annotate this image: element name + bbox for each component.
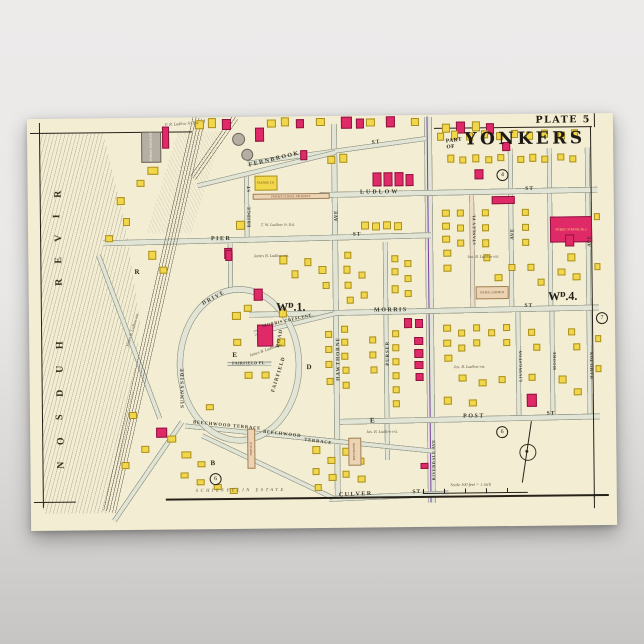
building bbox=[497, 154, 504, 161]
building bbox=[296, 119, 304, 128]
building-label: PRIVATE SCHOOL PROPERTY bbox=[271, 194, 310, 198]
ward-label: Wᴰ.4. bbox=[548, 289, 577, 304]
building bbox=[568, 328, 575, 335]
building bbox=[444, 397, 452, 405]
building bbox=[508, 264, 515, 271]
building bbox=[257, 325, 273, 347]
building-label: PLATING CO bbox=[257, 180, 274, 184]
building bbox=[318, 266, 326, 274]
map-border-line bbox=[594, 494, 595, 508]
building bbox=[488, 329, 495, 336]
building bbox=[232, 133, 245, 146]
building bbox=[595, 365, 601, 372]
building bbox=[404, 318, 412, 328]
building bbox=[236, 221, 245, 230]
building bbox=[123, 218, 130, 226]
building bbox=[181, 451, 191, 458]
plate-number-label: PLATE 5 bbox=[495, 114, 591, 126]
title-yonkers: YONKERS bbox=[464, 128, 585, 149]
building bbox=[459, 374, 467, 381]
building bbox=[414, 337, 423, 345]
estate-annotation: Jas. B. Ludlow est. bbox=[454, 364, 486, 369]
block-letter-D: D bbox=[306, 363, 311, 371]
building bbox=[369, 351, 376, 358]
building bbox=[244, 305, 252, 312]
building bbox=[341, 117, 352, 129]
building bbox=[262, 372, 270, 379]
building bbox=[329, 474, 337, 481]
estate-annotation: Scale 100 feet = 1 inch bbox=[450, 482, 491, 487]
building-label: FAIRFIELD bbox=[250, 442, 253, 456]
title-part-of: PARTOF bbox=[446, 137, 464, 151]
river-letter: R bbox=[53, 191, 64, 198]
building bbox=[313, 468, 320, 475]
street-label-bridge: BRIDGE bbox=[246, 206, 251, 227]
building bbox=[162, 127, 169, 149]
building bbox=[457, 210, 464, 217]
estate-annotation: Jas. B. Ludlow est. bbox=[467, 254, 499, 259]
building bbox=[392, 344, 399, 351]
building bbox=[405, 275, 412, 282]
building bbox=[442, 223, 450, 230]
building-label: STORAGE WAREHOUSE bbox=[150, 132, 153, 161]
street-label-ave: AVE bbox=[588, 235, 593, 246]
building bbox=[415, 319, 423, 328]
building bbox=[482, 224, 489, 231]
building bbox=[141, 446, 149, 453]
building bbox=[372, 172, 381, 186]
building bbox=[392, 285, 399, 293]
building bbox=[323, 282, 330, 289]
building bbox=[391, 268, 398, 275]
map-border-line bbox=[594, 494, 609, 496]
building-label: PUBLIC SCHOOL No.2 bbox=[555, 227, 586, 231]
building bbox=[225, 250, 232, 261]
plate-reference-badge-6: 6 bbox=[210, 473, 222, 485]
building bbox=[442, 210, 450, 217]
building bbox=[241, 149, 253, 161]
building bbox=[443, 250, 451, 257]
building bbox=[503, 324, 510, 331]
yonkers-atlas-map: FERNBROOKSTLUDLOWSTPIERSTMORRISSTPOSTSTC… bbox=[27, 113, 617, 531]
building bbox=[117, 197, 125, 205]
estate-annotation: James B. Ludlow est. bbox=[254, 253, 290, 258]
building bbox=[528, 329, 535, 336]
building bbox=[474, 169, 483, 179]
building bbox=[411, 118, 419, 126]
building bbox=[565, 234, 574, 246]
building bbox=[121, 462, 129, 469]
building bbox=[361, 222, 369, 230]
building bbox=[232, 312, 241, 320]
road-stanley-pl bbox=[469, 193, 475, 311]
building bbox=[206, 404, 214, 410]
street-label-st: ST bbox=[547, 411, 556, 417]
building bbox=[159, 267, 167, 274]
river-letter: V bbox=[53, 235, 64, 242]
street-label-riverdale-ave: RIVERDALE AVE bbox=[431, 439, 436, 480]
building bbox=[557, 268, 565, 275]
building bbox=[345, 282, 352, 289]
building bbox=[341, 326, 348, 333]
building bbox=[594, 263, 600, 270]
building bbox=[479, 379, 487, 386]
building bbox=[325, 346, 332, 353]
building bbox=[327, 457, 335, 464]
estate-annotation: Jas. B. Ludlow est. bbox=[366, 429, 398, 434]
building bbox=[312, 446, 320, 454]
building bbox=[533, 344, 540, 351]
building bbox=[370, 366, 377, 373]
building bbox=[129, 412, 137, 419]
building bbox=[392, 358, 399, 365]
building bbox=[325, 361, 332, 368]
street-label-ave: AVE bbox=[511, 228, 516, 239]
street-label-morris: MORRIS bbox=[374, 307, 408, 313]
building bbox=[291, 270, 298, 278]
building bbox=[316, 118, 325, 126]
building bbox=[414, 349, 423, 358]
street-label-fairfield-pl: FAIRFIELD PL bbox=[232, 360, 265, 365]
building bbox=[315, 484, 322, 491]
map-title: PARTOF YONKERS bbox=[446, 128, 586, 149]
building bbox=[197, 479, 205, 485]
plate-reference-badge-7: 7 bbox=[596, 312, 608, 324]
building bbox=[541, 156, 548, 163]
building bbox=[341, 339, 348, 346]
building bbox=[281, 117, 289, 126]
building bbox=[444, 355, 452, 362]
building bbox=[443, 265, 451, 272]
building bbox=[369, 336, 376, 343]
street-label-pier: PIER bbox=[211, 236, 231, 242]
building bbox=[105, 235, 113, 242]
building bbox=[472, 154, 479, 162]
block-letter-B: B bbox=[210, 459, 215, 467]
building-label: BEECHWOOD bbox=[353, 443, 356, 460]
building bbox=[459, 156, 466, 163]
building bbox=[522, 209, 529, 216]
building bbox=[473, 339, 480, 346]
building bbox=[383, 221, 391, 229]
building bbox=[469, 399, 477, 406]
street-label-st: ST bbox=[371, 139, 380, 146]
building bbox=[522, 224, 529, 231]
building bbox=[222, 119, 231, 130]
building bbox=[522, 239, 529, 246]
building bbox=[147, 167, 158, 175]
building bbox=[386, 116, 395, 127]
building bbox=[343, 382, 350, 389]
river-letter: D bbox=[55, 390, 66, 397]
building bbox=[394, 172, 403, 186]
building bbox=[573, 273, 581, 280]
street-label-st: ST bbox=[524, 303, 533, 309]
building bbox=[527, 394, 537, 407]
building bbox=[327, 156, 335, 164]
building bbox=[255, 128, 264, 142]
building bbox=[267, 119, 276, 127]
building bbox=[339, 154, 347, 163]
building bbox=[394, 222, 402, 230]
street-label-livingston: LIVINGSTON bbox=[518, 350, 523, 382]
building bbox=[361, 292, 368, 299]
building bbox=[392, 330, 399, 337]
block-letter-E: E bbox=[370, 416, 375, 424]
building bbox=[442, 236, 450, 243]
building bbox=[495, 274, 503, 281]
building bbox=[437, 133, 444, 141]
building bbox=[457, 225, 464, 232]
building bbox=[383, 172, 392, 186]
building bbox=[233, 339, 241, 346]
river-letter: H bbox=[55, 341, 66, 349]
building bbox=[325, 331, 332, 338]
street-label-purser: PURSER bbox=[386, 341, 391, 366]
street-label-post: POST bbox=[463, 413, 485, 419]
building bbox=[517, 156, 524, 163]
map-poster: FERNBROOKSTLUDLOWSTPIERSTMORRISSTPOSTSTC… bbox=[27, 113, 617, 531]
building bbox=[594, 213, 600, 220]
building bbox=[304, 258, 311, 266]
river-letter: R bbox=[54, 279, 65, 286]
building bbox=[341, 353, 348, 360]
river-letter: O bbox=[56, 437, 67, 445]
building bbox=[458, 330, 465, 337]
river-letter: S bbox=[54, 414, 65, 420]
building bbox=[557, 153, 564, 160]
building bbox=[327, 378, 334, 385]
building bbox=[482, 239, 489, 247]
building bbox=[137, 180, 145, 187]
street-label-st: ST bbox=[353, 232, 362, 238]
river-letter: N bbox=[56, 462, 67, 469]
building bbox=[499, 376, 506, 383]
building bbox=[414, 361, 423, 369]
building bbox=[574, 388, 582, 395]
building bbox=[342, 367, 349, 374]
street-label-hawthorne: HAWTHORNE bbox=[335, 337, 341, 381]
street-label-ludlow: LUDLOW bbox=[360, 189, 399, 195]
building bbox=[473, 324, 480, 331]
street-label-sunnyside: SUNNYSIDE bbox=[179, 367, 185, 408]
building bbox=[254, 289, 263, 301]
building bbox=[343, 471, 350, 478]
building bbox=[573, 343, 580, 350]
building bbox=[447, 155, 454, 163]
building bbox=[393, 372, 400, 379]
ward-label: Wᴰ.1. bbox=[276, 300, 305, 315]
building bbox=[347, 297, 354, 304]
building bbox=[300, 150, 307, 160]
building bbox=[356, 119, 364, 129]
building bbox=[372, 222, 380, 230]
building bbox=[485, 156, 492, 163]
building bbox=[344, 252, 351, 259]
street-label-moore: MOORE bbox=[552, 351, 557, 370]
block-letter-R: R bbox=[134, 268, 139, 276]
street-label-ave: AVE bbox=[334, 210, 339, 221]
building bbox=[358, 272, 365, 279]
building bbox=[492, 196, 515, 204]
plate-reference-badge-4: 4 bbox=[496, 169, 508, 181]
building bbox=[391, 255, 398, 262]
building bbox=[393, 400, 400, 407]
river-letter: I bbox=[51, 214, 62, 218]
river-letter: E bbox=[53, 257, 64, 264]
estate-annotation: T. W. Ludlow Jr. Est. bbox=[261, 222, 296, 227]
building bbox=[458, 345, 465, 352]
building bbox=[443, 325, 451, 332]
building bbox=[569, 155, 576, 162]
building bbox=[482, 209, 489, 216]
scale-bar bbox=[423, 488, 528, 494]
block-letter-E: E bbox=[232, 351, 237, 359]
building bbox=[343, 266, 350, 274]
street-label-st: ST bbox=[246, 185, 251, 192]
building bbox=[366, 118, 375, 126]
building bbox=[156, 428, 167, 438]
building bbox=[527, 264, 534, 271]
building bbox=[167, 436, 176, 443]
river-letter: U bbox=[55, 366, 66, 373]
building bbox=[405, 290, 412, 297]
estate-annotation: SCHIEFFELIN ESTATE bbox=[196, 487, 286, 493]
plate-reference-badge-6: 6 bbox=[496, 426, 508, 438]
building bbox=[405, 174, 413, 186]
building bbox=[393, 386, 400, 393]
building bbox=[404, 260, 411, 267]
building bbox=[567, 253, 575, 261]
building bbox=[529, 154, 536, 162]
building bbox=[181, 472, 189, 478]
building bbox=[443, 340, 451, 347]
building bbox=[529, 374, 536, 381]
building bbox=[538, 279, 545, 286]
building bbox=[595, 335, 601, 342]
street-label-st: ST bbox=[412, 489, 421, 495]
street-label-stanley-pl: STANLEY PL bbox=[471, 214, 476, 245]
map-border-line bbox=[594, 113, 595, 127]
street-label-hamilton: HAMILTON bbox=[589, 352, 594, 379]
building bbox=[420, 463, 428, 469]
building bbox=[559, 375, 567, 383]
building bbox=[503, 339, 510, 346]
building-label: 1ST M.E. CHURCH bbox=[480, 290, 504, 294]
building bbox=[358, 476, 366, 483]
building bbox=[197, 461, 205, 467]
building bbox=[148, 251, 156, 260]
building bbox=[208, 118, 216, 128]
street-label-st: ST bbox=[525, 186, 534, 192]
building bbox=[416, 373, 424, 381]
building bbox=[457, 240, 464, 247]
building bbox=[245, 372, 253, 379]
